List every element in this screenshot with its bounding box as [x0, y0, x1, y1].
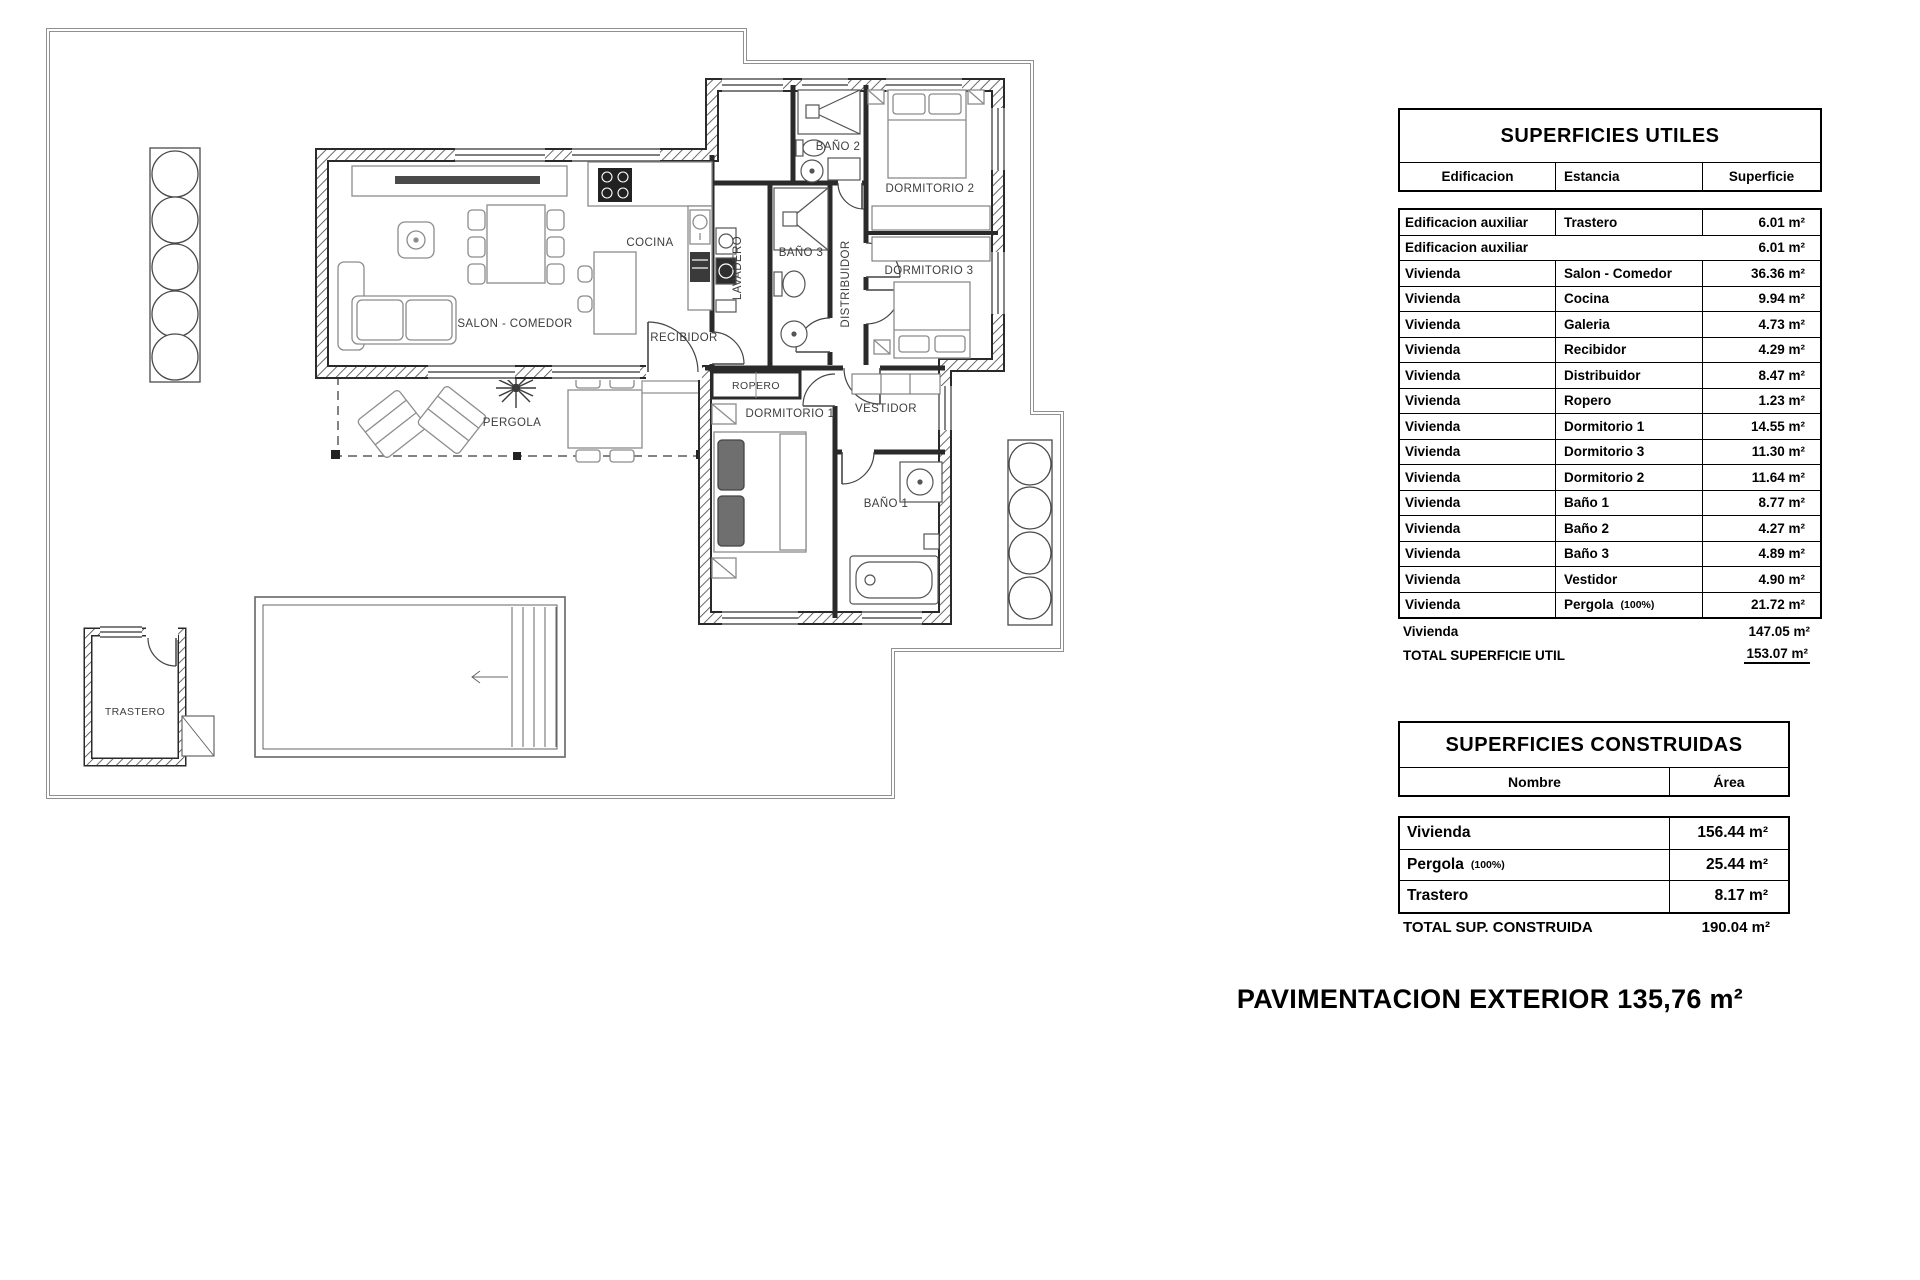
- room-label-recibidor: RECIBIDOR: [650, 332, 718, 344]
- superficies-construidas-header: Nombre Área: [1400, 767, 1788, 795]
- room-label-pergola: PERGOLA: [483, 417, 541, 429]
- room-label-bano3: BAÑO 3: [779, 246, 824, 259]
- room-label-vestidor: VESTIDOR: [855, 403, 917, 415]
- table-row: Vivienda Ropero 1.23 m²: [1400, 388, 1820, 414]
- table-row: Vivienda Salon - Comedor 36.36 m²: [1400, 260, 1820, 286]
- table-row: Vivienda Pergola (100%) 21.72 m²: [1400, 592, 1820, 618]
- column-header-nombre: Nombre: [1400, 768, 1670, 795]
- lounge-chairs: [357, 385, 488, 459]
- room-label-distribuidor: DISTRIBUIDOR: [840, 240, 852, 327]
- table-row: Vivienda Galeria 4.73 m²: [1400, 311, 1820, 337]
- superficies-utiles-title: SUPERFICIES UTILES: [1400, 110, 1820, 162]
- floor-plan-sheet: SALON - COMEDOR COCINA LAVADERO BAÑO 3 B…: [0, 0, 1920, 1280]
- table-row: Trastero 8.17 m²: [1400, 880, 1788, 912]
- outdoor-table: [568, 376, 642, 462]
- room-label-cocina: COCINA: [626, 237, 673, 249]
- subtotal-row: Vivienda 147.05 m²: [1398, 619, 1822, 643]
- room-label-trastero: TRASTERO: [105, 706, 165, 718]
- table-row: Vivienda Baño 1 8.77 m²: [1400, 490, 1820, 516]
- table-row: Vivienda Dormitorio 2 11.64 m²: [1400, 464, 1820, 490]
- room-label-bano1: BAÑO 1: [864, 497, 909, 510]
- superficies-construidas-title: SUPERFICIES CONSTRUIDAS: [1400, 723, 1788, 767]
- room-label-salon-comedor: SALON - COMEDOR: [457, 318, 572, 330]
- table-row: Vivienda Baño 3 4.89 m²: [1400, 541, 1820, 567]
- swimming-pool: [255, 597, 565, 757]
- table-row: Vivienda Baño 2 4.27 m²: [1400, 515, 1820, 541]
- table-row: Pergola (100%) 25.44 m²: [1400, 849, 1788, 881]
- room-label-dormitorio2: DORMITORIO 2: [886, 183, 975, 195]
- table-row: Vivienda Recibidor 4.29 m²: [1400, 337, 1820, 363]
- total-row: TOTAL SUPERFICIE UTIL 153.07 m²: [1398, 643, 1822, 667]
- table-row: Vivienda Distribuidor 8.47 m²: [1400, 362, 1820, 388]
- trees-right: [1008, 440, 1052, 625]
- superficies-utiles-body: Edificacion auxiliar Trastero 6.01 m² Ed…: [1398, 208, 1822, 619]
- column-header-edificacion: Edificacion: [1400, 163, 1556, 190]
- pavimentacion-exterior-note: PAVIMENTACION EXTERIOR 135,76 m²: [1158, 984, 1822, 1015]
- trastero-building: [88, 624, 214, 762]
- superficies-utiles-table: SUPERFICIES UTILES Edificacion Estancia …: [1398, 108, 1822, 667]
- column-header-estancia: Estancia: [1556, 163, 1703, 190]
- trees-left: [150, 148, 200, 382]
- table-row: Vivienda Cocina 9.94 m²: [1400, 286, 1820, 312]
- table-row: Vivienda 156.44 m²: [1400, 818, 1788, 849]
- vestidor-closets: [852, 374, 940, 394]
- table-row: Vivienda Vestidor 4.90 m²: [1400, 566, 1820, 592]
- area-tables-panel: SUPERFICIES UTILES Edificacion Estancia …: [1398, 108, 1822, 941]
- total-row: TOTAL SUP. CONSTRUIDA 190.04 m²: [1398, 914, 1790, 941]
- room-label-ropero: ROPERO: [732, 380, 780, 392]
- superficies-construidas-body: Vivienda 156.44 m² Pergola (100%) 25.44 …: [1398, 816, 1790, 914]
- room-label-dormitorio3: DORMITORIO 3: [885, 265, 974, 277]
- table-row: Vivienda Dormitorio 3 11.30 m²: [1400, 439, 1820, 465]
- column-header-area: Área: [1670, 768, 1788, 795]
- room-label-dormitorio1: DORMITORIO 1: [746, 408, 835, 420]
- table-row: Edificacion auxiliar 6.01 m²: [1400, 235, 1820, 261]
- superficies-construidas-table: SUPERFICIES CONSTRUIDAS Nombre Área Vivi…: [1398, 721, 1790, 941]
- entry-door-gap: [646, 364, 702, 380]
- table-row: Vivienda Dormitorio 1 14.55 m²: [1400, 413, 1820, 439]
- pergola-area: [331, 368, 708, 462]
- superficies-utiles-header: Edificacion Estancia Superficie: [1400, 162, 1820, 190]
- room-label-bano2: BAÑO 2: [816, 140, 861, 153]
- column-header-superficie: Superficie: [1703, 163, 1820, 190]
- table-row: Edificacion auxiliar Trastero 6.01 m²: [1400, 210, 1820, 235]
- room-label-lavadero: LAVADERO: [732, 236, 744, 300]
- floor-plan: SALON - COMEDOR COCINA LAVADERO BAÑO 3 B…: [0, 0, 1140, 1080]
